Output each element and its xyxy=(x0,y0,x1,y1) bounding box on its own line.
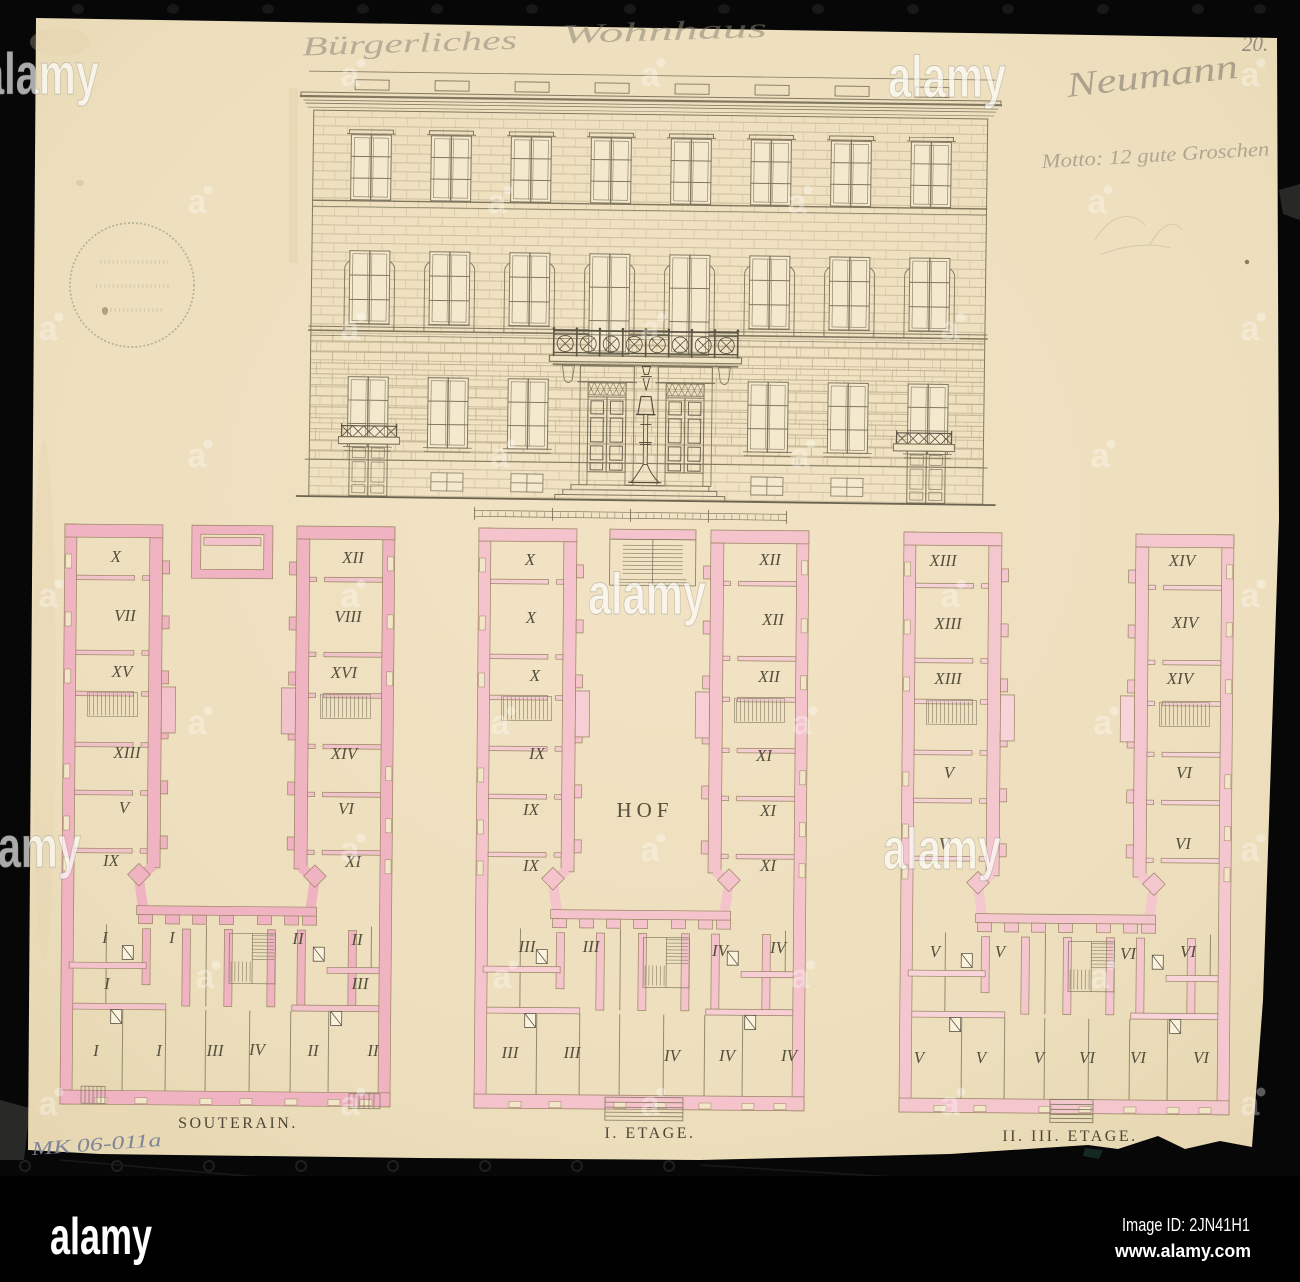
svg-text:XIII: XIII xyxy=(928,551,958,570)
svg-text:X: X xyxy=(529,666,541,685)
svg-text:VI: VI xyxy=(1079,1048,1096,1067)
svg-text:alamy: alamy xyxy=(883,817,1001,882)
svg-text:III: III xyxy=(501,1043,520,1062)
svg-text:IV: IV xyxy=(769,938,789,957)
svg-text:VII: VII xyxy=(114,606,137,625)
svg-text:VI: VI xyxy=(1175,834,1192,853)
svg-text:I. ETAGE.: I. ETAGE. xyxy=(605,1125,696,1142)
svg-text:XII: XII xyxy=(341,548,365,567)
svg-text:XII: XII xyxy=(761,610,785,629)
svg-text:VI: VI xyxy=(338,799,355,818)
svg-text:alamy: alamy xyxy=(0,42,99,107)
svg-text:II. III. ETAGE.: II. III. ETAGE. xyxy=(1002,1128,1137,1145)
svg-text:IV: IV xyxy=(663,1046,683,1065)
svg-text:II: II xyxy=(350,930,364,949)
svg-text:IX: IX xyxy=(102,851,120,870)
svg-text:X: X xyxy=(110,547,122,566)
svg-text:XII: XII xyxy=(758,550,782,569)
svg-text:III: III xyxy=(351,974,370,993)
svg-text:XVI: XVI xyxy=(330,663,359,682)
svg-text:VI: VI xyxy=(1120,944,1137,963)
svg-text:SOUTERAIN.: SOUTERAIN. xyxy=(178,1115,298,1132)
svg-text:IV: IV xyxy=(711,941,731,960)
svg-text:alamy: alamy xyxy=(0,815,81,880)
svg-text:XIII: XIII xyxy=(933,614,963,633)
svg-text:XI: XI xyxy=(759,856,777,875)
svg-text:IX: IX xyxy=(528,744,546,763)
svg-text:HOF: HOF xyxy=(616,798,673,822)
svg-text:IX: IX xyxy=(522,856,540,875)
svg-text:XIII: XIII xyxy=(112,743,142,762)
svg-text:VI: VI xyxy=(1130,1048,1147,1067)
svg-text:III: III xyxy=(518,937,537,956)
svg-text:XI: XI xyxy=(759,801,777,820)
svg-text:IV: IV xyxy=(780,1046,800,1065)
svg-text:XIV: XIV xyxy=(1166,669,1196,688)
svg-text:XI: XI xyxy=(755,746,773,765)
svg-text:III: III xyxy=(563,1043,582,1062)
svg-text:II: II xyxy=(291,929,305,948)
svg-text:III: III xyxy=(206,1041,225,1060)
svg-text:VI: VI xyxy=(1180,942,1197,961)
svg-text:II: II xyxy=(306,1041,320,1060)
svg-text:www.alamy.com: www.alamy.com xyxy=(1114,1241,1251,1261)
svg-text:20.: 20. xyxy=(1242,32,1268,56)
svg-text:alamy: alamy xyxy=(50,1208,152,1266)
svg-text:XIV: XIV xyxy=(1171,613,1201,632)
svg-text:XV: XV xyxy=(111,662,135,681)
svg-text:Image ID: 2JN41H1: Image ID: 2JN41H1 xyxy=(1122,1215,1250,1235)
svg-text:XIII: XIII xyxy=(933,669,963,688)
svg-text:alamy: alamy xyxy=(588,562,706,627)
svg-text:VI: VI xyxy=(1176,763,1193,782)
svg-text:VI: VI xyxy=(1193,1048,1210,1067)
svg-text:alamy: alamy xyxy=(888,45,1006,110)
svg-text:XIV: XIV xyxy=(330,744,360,763)
svg-text:X: X xyxy=(525,608,537,627)
svg-text:III: III xyxy=(582,937,601,956)
svg-text:XII: XII xyxy=(757,667,781,686)
svg-text:IV: IV xyxy=(718,1046,738,1065)
svg-text:II: II xyxy=(366,1041,380,1060)
svg-text:XIV: XIV xyxy=(1168,551,1198,570)
svg-text:IX: IX xyxy=(522,800,540,819)
svg-text:X: X xyxy=(524,550,536,569)
svg-text:IV: IV xyxy=(248,1040,268,1059)
